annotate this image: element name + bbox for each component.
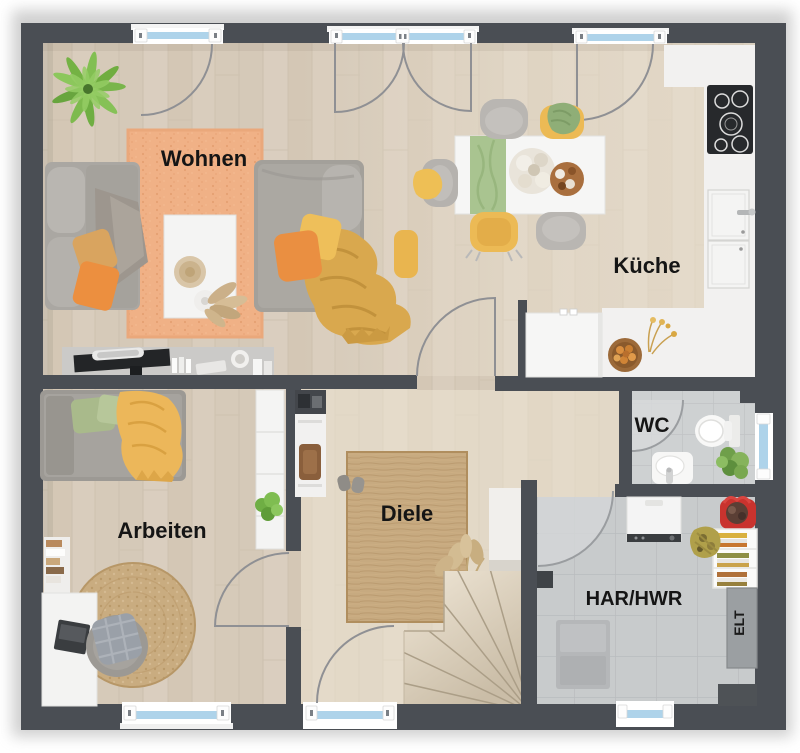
svg-text:Küche: Küche	[613, 253, 680, 278]
svg-text:Wohnen: Wohnen	[161, 146, 247, 171]
svg-text:HAR/HWR: HAR/HWR	[586, 588, 683, 610]
svg-text:Diele: Diele	[381, 501, 434, 526]
svg-text:WC: WC	[635, 414, 670, 437]
svg-text:Arbeiten: Arbeiten	[117, 518, 206, 543]
svg-text:ELT: ELT	[731, 610, 747, 636]
